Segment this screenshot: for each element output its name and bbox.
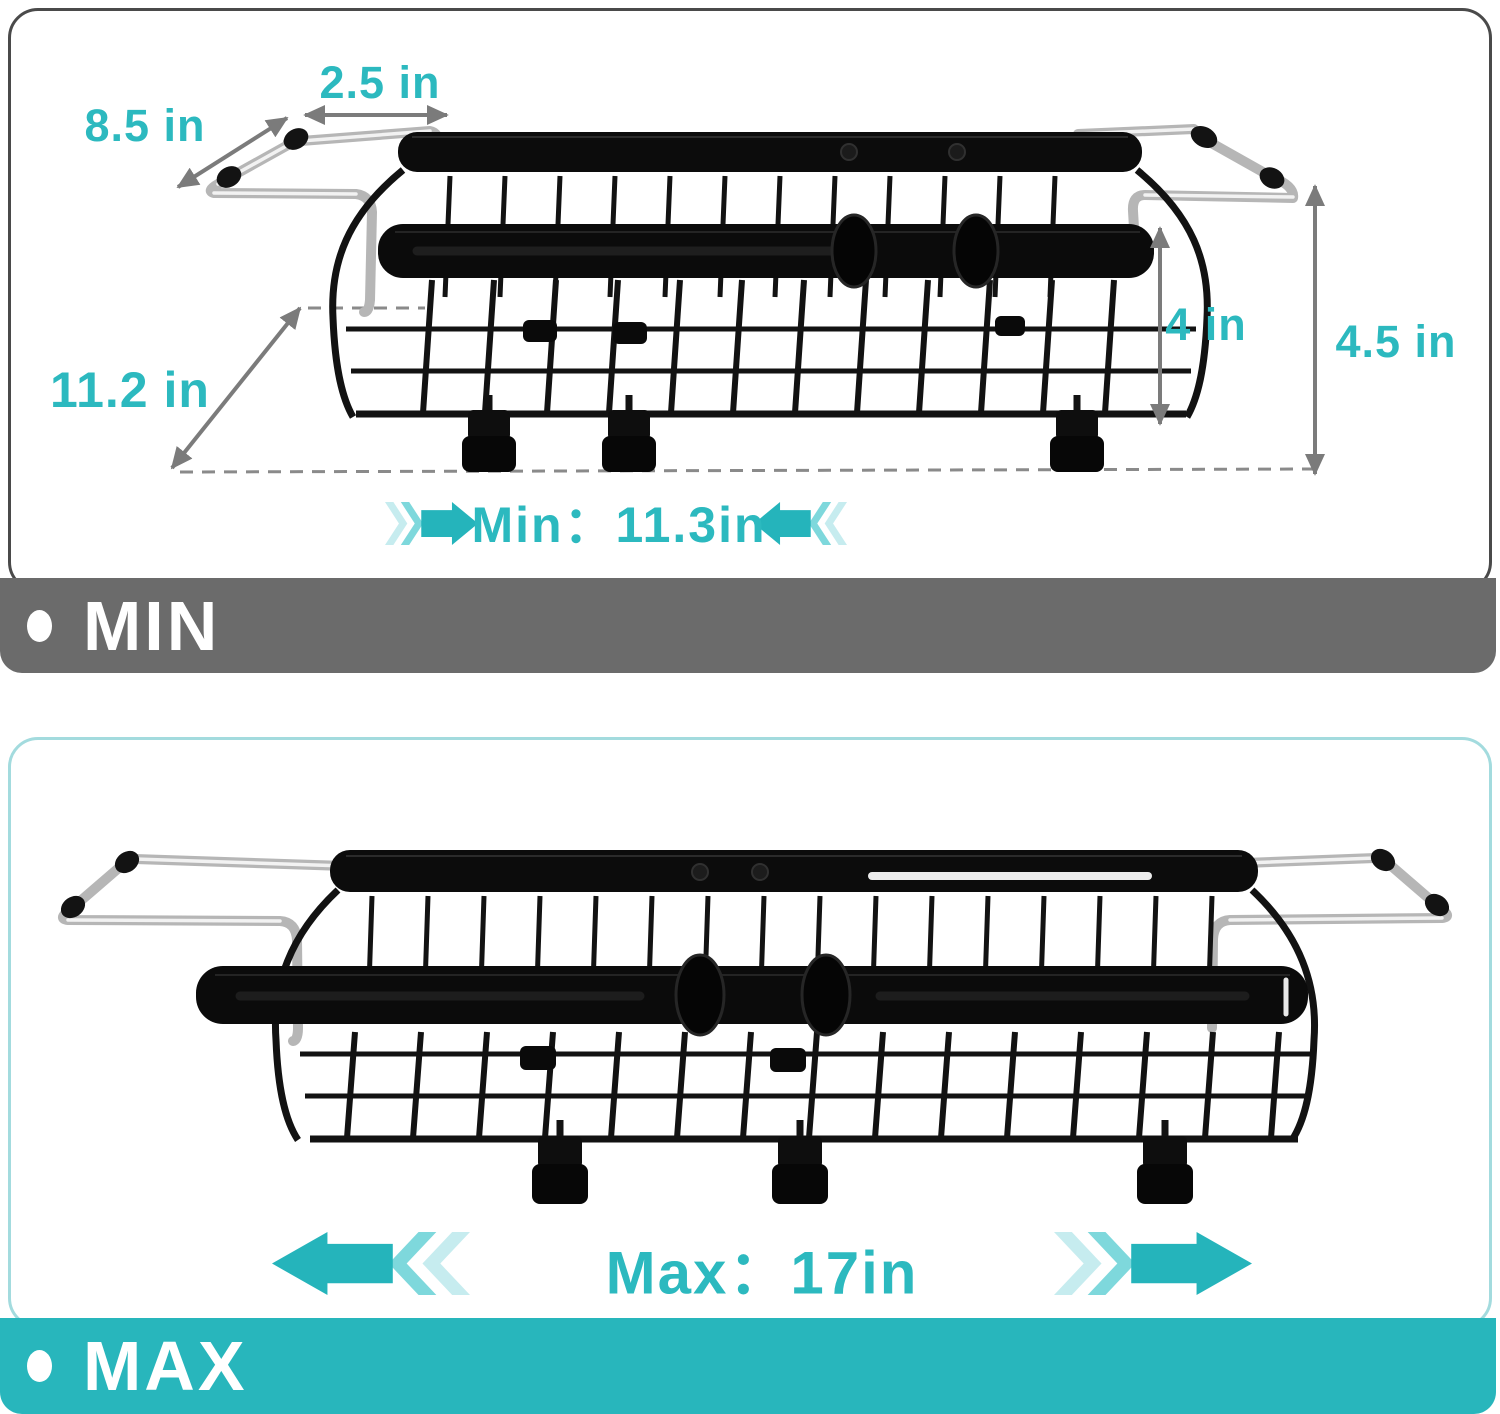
dimension-label-handle-extension: 2.5 in	[319, 57, 440, 109]
max-banner: MAX	[0, 1318, 1496, 1414]
dimension-label-overall-height: 4.5 in	[1335, 316, 1456, 368]
min-size-callout: Min：11.3in	[471, 485, 766, 557]
max-size-callout: Max：17in	[606, 1225, 919, 1312]
rack-feet	[532, 1120, 1193, 1204]
compress-arrow-left-icon	[385, 502, 478, 545]
expand-arrow-right-icon	[1054, 1232, 1252, 1295]
bullet-icon	[27, 610, 52, 642]
dish-rack-min-illustration	[211, 122, 1293, 472]
expand-arrow-left-icon	[272, 1232, 470, 1295]
min-banner-label: MIN	[83, 591, 220, 661]
baseline-dashed-line	[180, 469, 1315, 472]
dimension-label-rack-depth: 11.2 in	[50, 361, 210, 419]
bullet-icon	[27, 1350, 52, 1382]
product-dimension-infographic: 2.5 in 8.5 in 11.2 in 4 in 4.5 in Min：11…	[0, 0, 1500, 1414]
rack-feet	[462, 395, 1104, 472]
min-banner: MIN	[0, 578, 1496, 673]
dish-rack-max-illustration	[57, 844, 1454, 1204]
expander-knob-icon	[954, 215, 998, 287]
dimension-label-handle-bar-length: 8.5 in	[84, 100, 205, 152]
compress-arrow-right-icon	[754, 502, 847, 545]
scene-graphic	[0, 0, 1500, 1414]
expander-knob-icon	[802, 955, 850, 1035]
expander-knob-icon	[676, 955, 724, 1035]
max-banner-label: MAX	[83, 1331, 248, 1401]
expander-knob-icon	[832, 215, 876, 287]
dimension-label-basket-height: 4 in	[1165, 299, 1247, 351]
